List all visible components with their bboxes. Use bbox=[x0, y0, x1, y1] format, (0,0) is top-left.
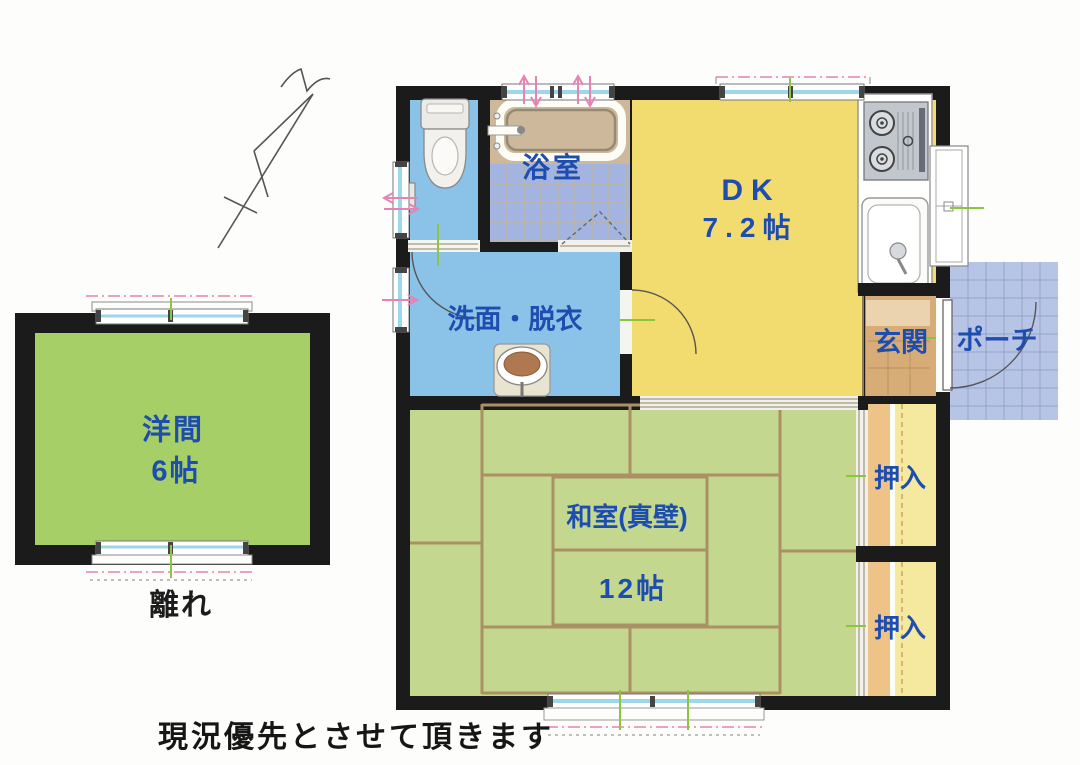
washroom-label: 洗面・脱衣 bbox=[448, 307, 583, 334]
annex-name-label: 離れ bbox=[149, 591, 213, 621]
japanese-room bbox=[410, 404, 856, 696]
japanese-room-size-label: 12帖 bbox=[599, 575, 667, 603]
closet-divider-wall bbox=[856, 546, 936, 562]
dk-tatami-sliding-door bbox=[640, 396, 858, 410]
north-arrow-icon bbox=[218, 69, 330, 248]
annex-bottom-window bbox=[86, 541, 256, 580]
kitchen-window bbox=[930, 146, 984, 266]
washbasin-icon bbox=[494, 344, 550, 397]
floorplan-page: 浴室 DK 7.2帖 洗面・脱衣 玄関 ポーチ 和室(真壁) 12帖 押入 押入… bbox=[0, 0, 1080, 765]
bathroom-label: 浴室 bbox=[522, 154, 584, 182]
stove-icon bbox=[864, 102, 928, 180]
closet-upper-label: 押入 bbox=[874, 465, 926, 491]
main-building bbox=[382, 76, 1058, 735]
japanese-room-label: 和室(真壁) bbox=[566, 504, 687, 530]
closet-lower-label: 押入 bbox=[874, 615, 926, 641]
entrance-label: 玄関 bbox=[874, 330, 928, 357]
kitchen-sink-icon bbox=[862, 198, 928, 290]
toilet-icon bbox=[421, 99, 469, 188]
dk-label: DK bbox=[721, 176, 780, 206]
floorplan-drawing bbox=[0, 0, 1080, 765]
tatami-window bbox=[544, 690, 764, 735]
disclaimer-note: 現況優先とさせて頂きます bbox=[158, 712, 554, 756]
porch-label: ポーチ bbox=[957, 328, 1038, 355]
kitchen-counter bbox=[858, 94, 932, 292]
toilet-room bbox=[399, 99, 478, 242]
annex-room-size-label: 6帖 bbox=[151, 458, 200, 487]
annex-top-window bbox=[86, 296, 256, 324]
dk-window bbox=[716, 77, 870, 102]
dk-size-label: 7.2帖 bbox=[703, 214, 798, 242]
annex-room-label: 洋間 bbox=[142, 417, 204, 446]
